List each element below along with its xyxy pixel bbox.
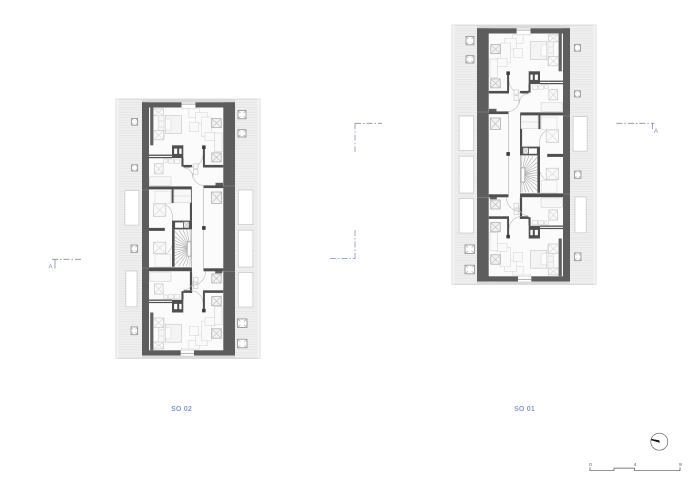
svg-text:A: A	[49, 265, 53, 271]
svg-text:SO 01: SO 01	[514, 406, 535, 413]
svg-text:4: 4	[634, 462, 637, 468]
svg-text:0: 0	[589, 462, 592, 468]
svg-text:SO 02: SO 02	[171, 406, 192, 413]
svg-text:A: A	[654, 129, 658, 135]
svg-text:8: 8	[679, 462, 682, 468]
